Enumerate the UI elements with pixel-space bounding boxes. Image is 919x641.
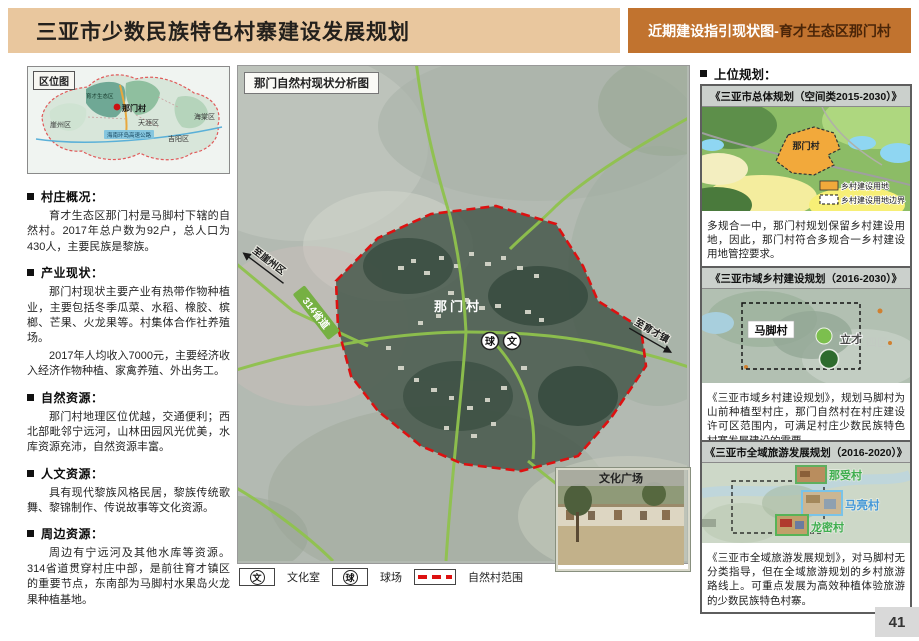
page-title: 三亚市少数民族特色村寨建设发展规划 [36, 16, 410, 46]
culture-room-icon: 文 [504, 333, 521, 350]
legend-culture-icon: 文 [239, 568, 275, 586]
section-text: 具有现代黎族风格民居，黎族传统歌舞、黎锦制作、传说故事等文化资源。 [27, 486, 230, 517]
section-text: 那门村地理区位优越，交通便利；西北部毗邻宁远河，山林田园风光优美，水库资源充沛，… [27, 410, 230, 456]
district-label-tianya: 天涯区 [138, 118, 159, 127]
location-map: 区位图 海南环岛高速公路 育才生态区 那门村 崖州区 天涯区 吉阳区 海棠区 [27, 66, 230, 174]
panel1-legend1: 乡村建设用地 [841, 181, 889, 191]
section-heading-culture: 人文资源： [27, 465, 230, 482]
village-dot [114, 104, 121, 111]
panel2-area1: 立才 [840, 332, 862, 346]
panel1-landuse-map: 那门村 乡村建设用地 乡村建设用地边界 [702, 107, 910, 211]
location-map-title: 区位图 [33, 71, 75, 90]
panel3-village2: 马亮村 [845, 498, 880, 512]
section-text: 周边有宁远河及其他水库等资源。314省道贯穿村庄中部，是前往育才镇区的重要节点，… [27, 546, 230, 608]
panel2-map: 马脚村 立才 四区 [702, 289, 910, 383]
panel3-village1: 那受村 [829, 468, 862, 482]
plan-panel-master-plan: 《三亚市总体规划（空间类2015-2030）》 那门村 乡村建设用地 乡村建设用… [700, 84, 912, 268]
culture-square-photo: 文化广场 [556, 468, 690, 571]
panel1-legend2: 乡村建设用地边界 [841, 195, 905, 205]
panel2-dot-light [816, 328, 832, 344]
panel2-title: 《三亚市域乡村建设规划（2016-2030）》 [702, 268, 910, 289]
village-name-label: 那门村 [434, 299, 482, 314]
panel2-village-label: 马脚村 [755, 323, 788, 337]
panel3-title: 《三亚市全域旅游发展规划（2016-2020）》 [702, 442, 910, 463]
subtitle-prefix: 近期建设指引现状图- [648, 21, 779, 41]
page-title-bar: 三亚市少数民族特色村寨建设发展规划 [8, 8, 620, 53]
bullet-square [27, 530, 34, 537]
district-label-jiyang: 吉阳区 [168, 134, 189, 143]
panel1-village-label: 那门村 [792, 140, 819, 151]
inset-label: 文化广场 [599, 471, 643, 485]
district-label-haitang: 海棠区 [194, 112, 215, 121]
page-number: 41 [875, 607, 919, 637]
planning-poster-page: 三亚市少数民族特色村寨建设发展规划 近期建设指引现状图-育才生态区那门村 区位图… [0, 0, 919, 641]
panel2-dot-dark [820, 350, 839, 369]
village-analysis-map: 那门自然村现状分析图 [237, 65, 690, 564]
legend-boundary-swatch [414, 569, 456, 585]
svg-text:球: 球 [485, 335, 496, 348]
village-label: 那门村 [122, 103, 146, 113]
section-text: 2017年人均收入7000元，主要经济收入经济作物种植、家禽养殖、外出务工。 [27, 349, 230, 380]
bullet-square [700, 70, 707, 77]
analysis-map-title: 那门自然村现状分析图 [244, 72, 379, 94]
subtitle-village: 育才生态区那门村 [779, 21, 891, 41]
coast-highway-label: 海南环岛高速公路 [107, 131, 152, 139]
page-subtitle-bar: 近期建设指引现状图-育才生态区那门村 [628, 8, 911, 53]
bullet-square [27, 193, 34, 200]
bullet-square [27, 394, 34, 401]
village-info-column: 村庄概况： 育才生态区那门村是马脚村下辖的自然村。2017年总户数为92户，总人… [27, 179, 230, 610]
section-heading-industry: 产业现状： [27, 264, 230, 281]
section-text: 那门村现状主要产业有热带作物种植业，主要包括冬季瓜菜、水稻、橡胶、槟榔、芒果、火… [27, 285, 230, 347]
section-heading-nature: 自然资源： [27, 389, 230, 406]
legend-ball-icon: 球 [332, 568, 368, 586]
panel1-text: 多规合一中，那门村规划保留乡村建设用地，因此，那门村符合多规合一乡村建设用地管控… [702, 216, 910, 266]
bullet-square [27, 470, 34, 477]
panel2-area2: 四区 [866, 337, 888, 349]
plan-panel-tourism: 《三亚市全域旅游发展规划（2016-2020）》 那受村 马亮村 龙密村 [700, 440, 912, 614]
panel3-village3: 龙密村 [810, 520, 844, 534]
map-legend: 文 文化室 球 球场 自然村范围 [239, 568, 523, 586]
district-label-yazhou: 崖州区 [50, 121, 71, 129]
plan-panel-rural-construction: 《三亚市域乡村建设规划（2016-2030）》 马脚村 立才 四区 《三亚市域乡… [700, 266, 912, 454]
panel3-map: 那受村 马亮村 龙密村 [702, 463, 910, 543]
bullet-square [27, 269, 34, 276]
section-text: 育才生态区那门村是马脚村下辖的自然村。2017年总户数为92户，总人口为430人… [27, 209, 230, 255]
legend-culture-label: 文化室 [287, 569, 320, 585]
panel3-text: 《三亚市全域旅游发展规划》，对马脚村无分类指导，但在全域旅游规划的乡村旅游路线上… [702, 548, 910, 612]
section-heading-surroundings: 周边资源： [27, 525, 230, 542]
svg-text:文: 文 [507, 335, 518, 348]
section-heading-overview: 村庄概况： [27, 188, 230, 205]
zone-label: 育才生态区 [86, 92, 114, 100]
panel1-title: 《三亚市总体规划（空间类2015-2030）》 [702, 86, 910, 107]
legend-ball-label: 球场 [380, 569, 402, 585]
upper-plans-heading: 上位规划： [700, 64, 777, 83]
legend-boundary-label: 自然村范围 [468, 569, 523, 585]
ballfield-icon: 球 [482, 333, 499, 350]
